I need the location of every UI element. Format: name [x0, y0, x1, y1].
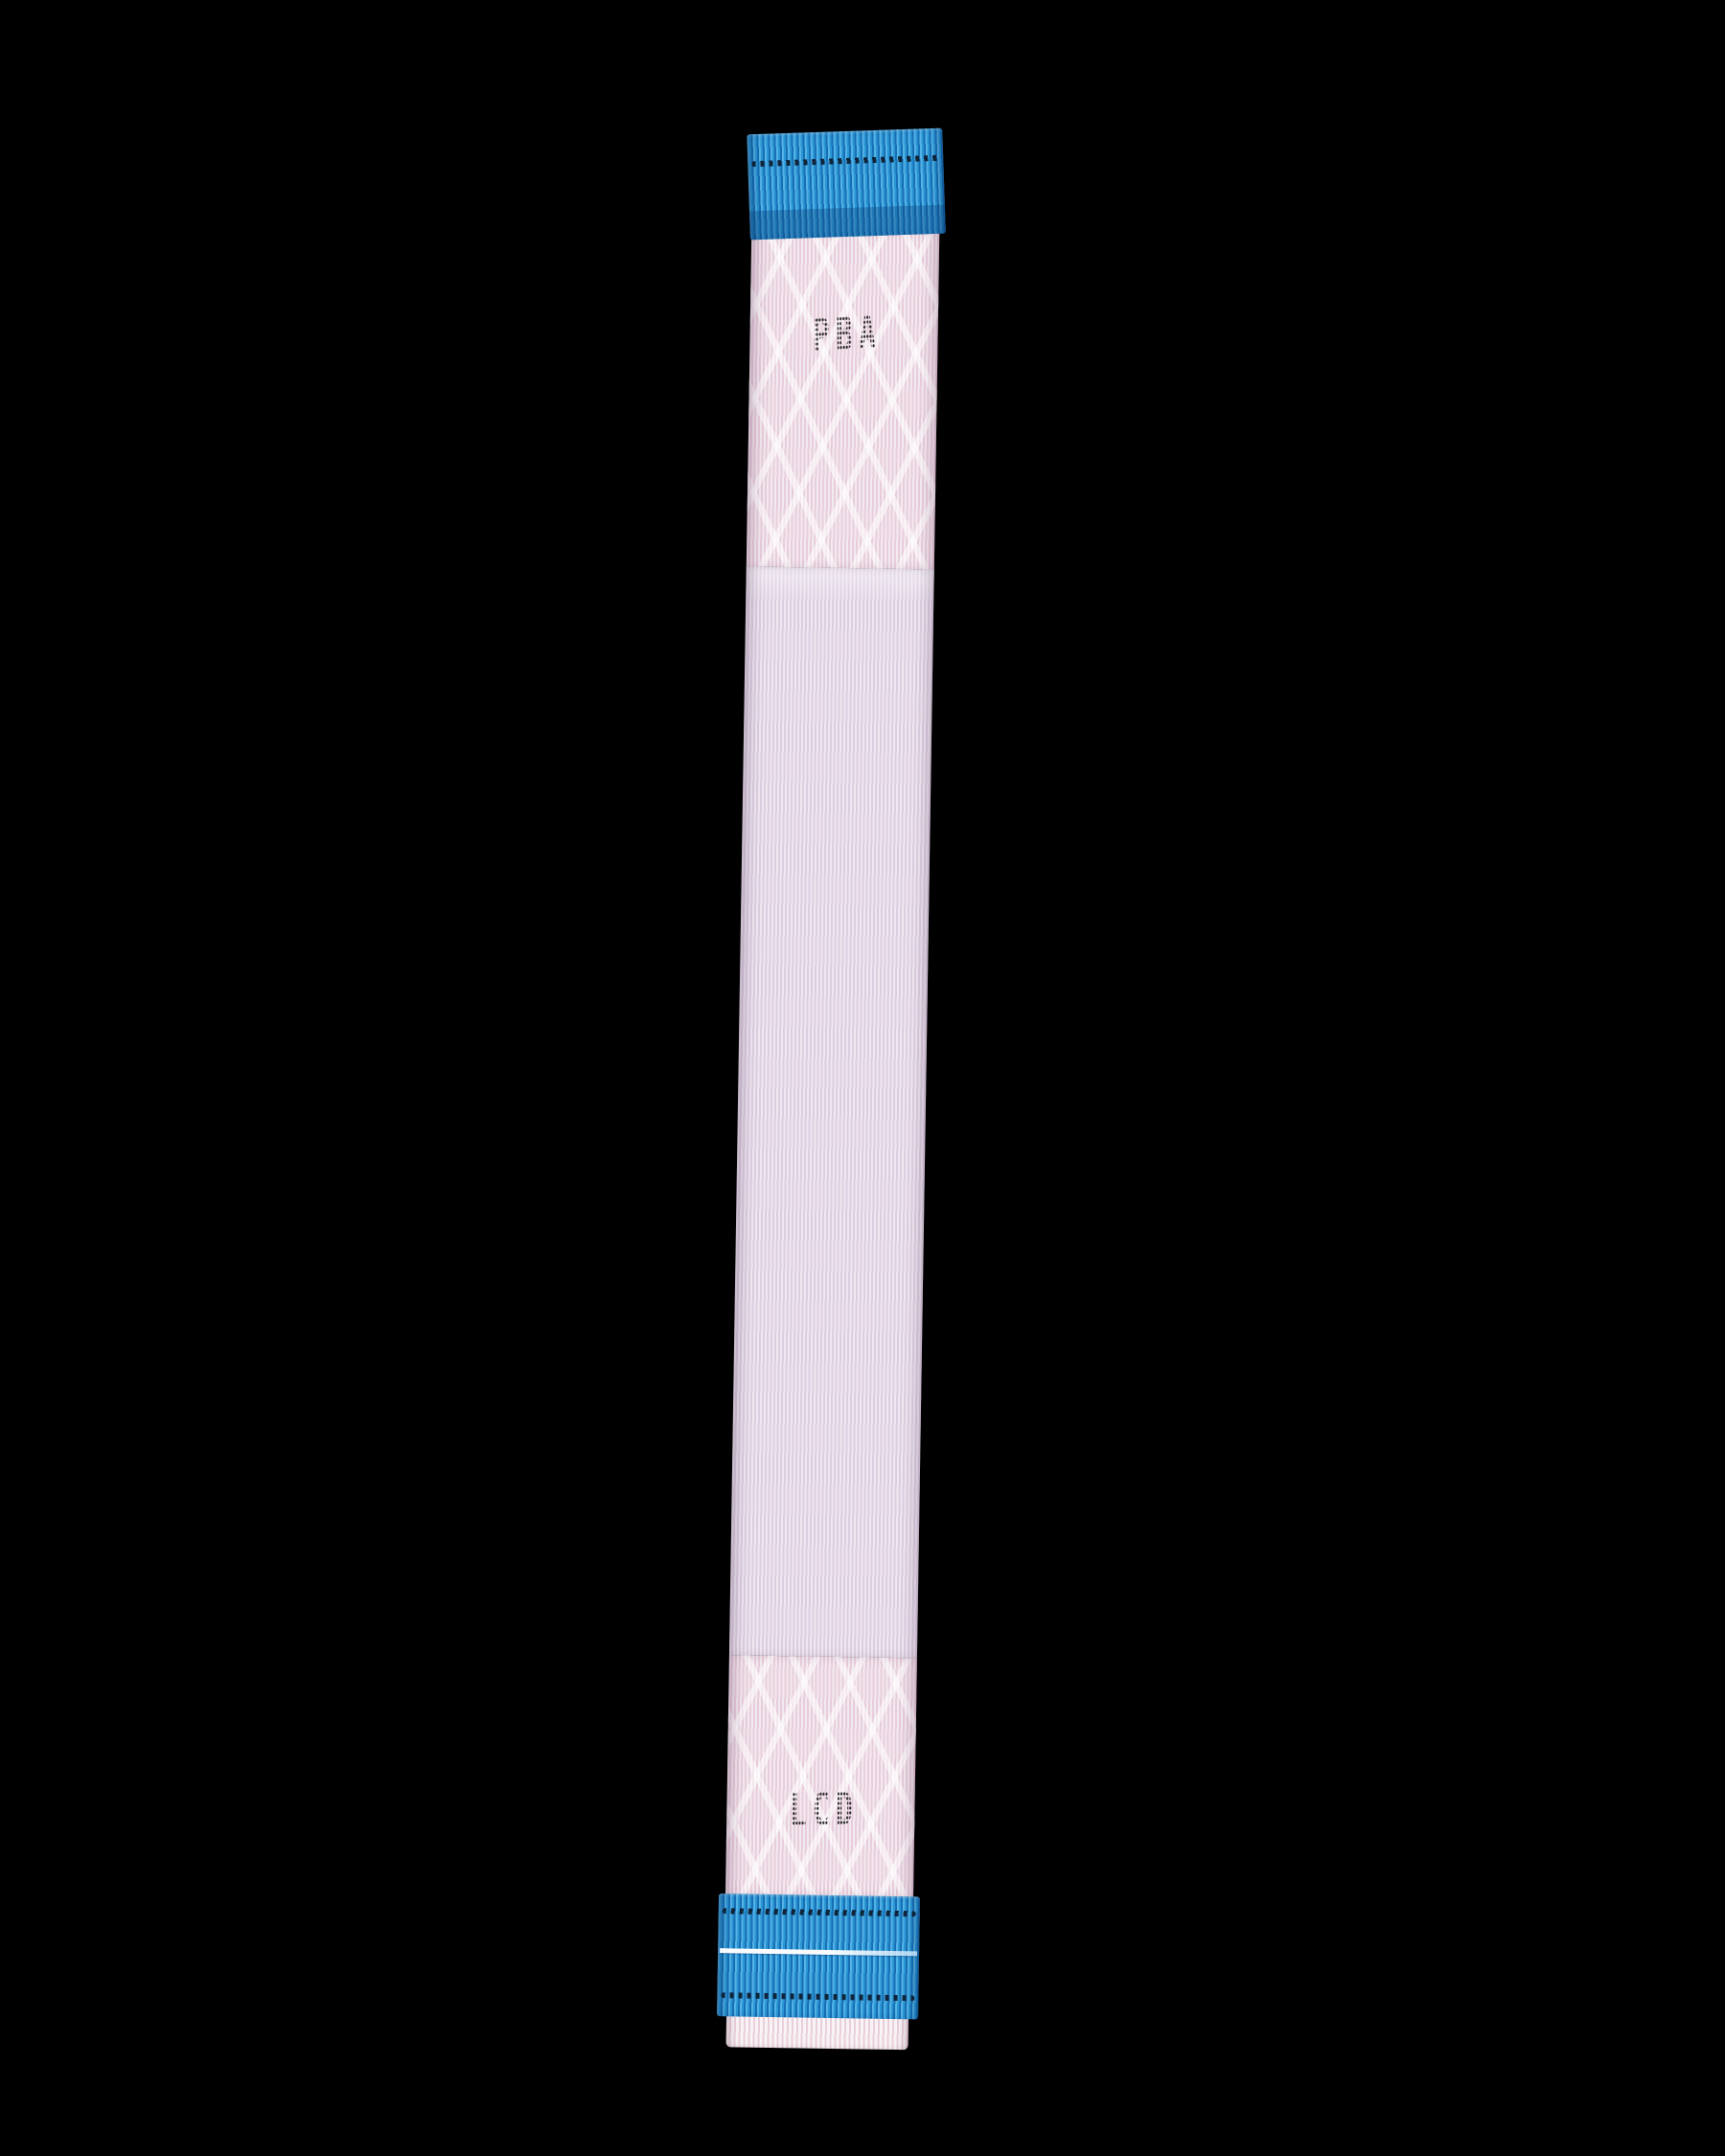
- lcd-marking-text: LCD: [783, 1786, 859, 1833]
- ribbon-cable: PBA LCD: [724, 126, 941, 2049]
- pba-marking-text: PBA: [806, 310, 882, 359]
- stiffener-split-line: [720, 1948, 917, 1956]
- pba-marking: PBA: [749, 310, 938, 358]
- ribbon-mesh-top: PBA: [747, 229, 940, 569]
- bottom-connector-stiffener: [717, 1893, 920, 2019]
- contact-dot-line: [723, 1908, 916, 1916]
- contact-dot-line: [751, 155, 939, 167]
- photo-canvas: PBA LCD: [0, 0, 1725, 2156]
- top-connector-stiffener: [747, 128, 946, 241]
- lcd-marking: LCD: [726, 1785, 915, 1834]
- contact-dot-line: [721, 1992, 914, 2001]
- ribbon-body: [729, 566, 934, 1658]
- ribbon-mesh-bottom: LCD: [725, 1655, 917, 1897]
